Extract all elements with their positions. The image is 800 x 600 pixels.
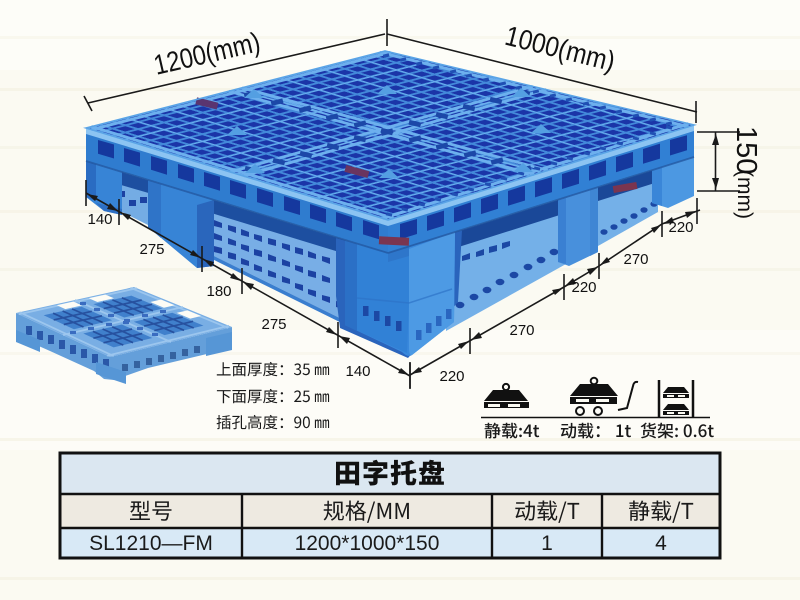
svg-text:1: 1 bbox=[541, 532, 553, 555]
svg-text:220: 220 bbox=[571, 279, 596, 296]
svg-text:270: 270 bbox=[623, 251, 648, 268]
svg-text:220: 220 bbox=[668, 219, 693, 236]
svg-text:150: 150 bbox=[730, 126, 762, 174]
svg-text:270: 270 bbox=[509, 322, 534, 339]
svg-text:SL1210—FM: SL1210—FM bbox=[89, 532, 213, 555]
svg-text:275: 275 bbox=[261, 316, 286, 333]
svg-text:180: 180 bbox=[206, 283, 231, 300]
svg-text:275: 275 bbox=[139, 241, 164, 258]
svg-text:140: 140 bbox=[87, 211, 112, 228]
svg-text:4: 4 bbox=[655, 532, 667, 555]
svg-text:140: 140 bbox=[345, 363, 370, 380]
svg-text:220: 220 bbox=[439, 368, 464, 385]
svg-text:1200*1000*150: 1200*1000*150 bbox=[295, 532, 440, 555]
svg-text:(mm): (mm) bbox=[733, 170, 756, 219]
